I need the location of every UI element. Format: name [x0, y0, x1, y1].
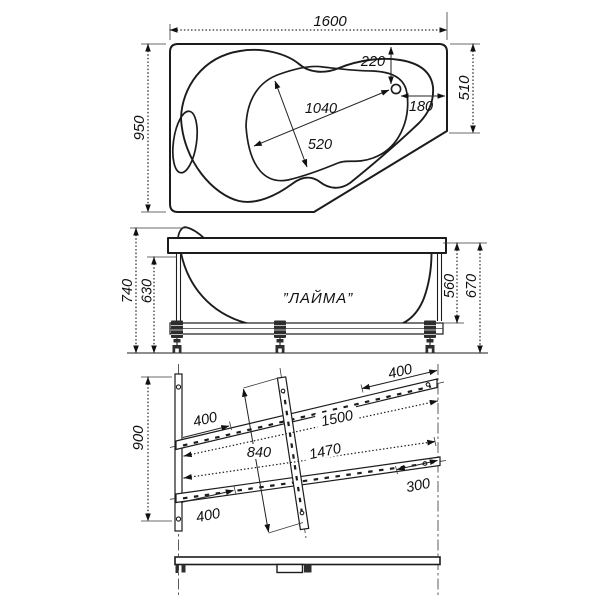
dim-basin-width-label: 520	[308, 137, 332, 153]
dim-height-underside-left: 630	[140, 257, 178, 353]
drawing-canvas: 1600 950 510 220 180 1040 520	[0, 0, 600, 600]
foot-right	[426, 338, 435, 354]
dim-height-underside-right-label: 560	[442, 274, 458, 298]
dim-upper-right-offset-label: 400	[387, 361, 414, 382]
foot-left	[173, 338, 182, 354]
dim-height-underside-left-label: 630	[140, 279, 156, 303]
drain-hole	[391, 84, 400, 93]
rim-edge	[168, 238, 446, 253]
left-vertical-rail	[175, 374, 182, 531]
dim-right-edge-label: 510	[456, 75, 473, 101]
dim-lower-right-offset-label: 300	[405, 476, 432, 496]
dim-lower-left-offset-label: 400	[195, 506, 222, 526]
clamp-center	[274, 321, 286, 339]
rail-hole	[176, 385, 180, 389]
dim-right-edge: 510	[449, 44, 480, 133]
side-view: 740 630 560 670 ”ЛАЙМА”	[120, 227, 488, 353]
headrest-profile	[178, 227, 204, 238]
dim-frame-width-label: 900	[130, 425, 147, 451]
dim-drain-right-label: 180	[409, 99, 433, 115]
technical-drawing-bathtub: 1600 950 510 220 180 1040 520	[0, 0, 600, 600]
model-name-label: ”ЛАЙМА”	[283, 289, 354, 307]
dim-height-rim-left-label: 740	[120, 279, 136, 303]
panel-center-bracket	[277, 565, 312, 573]
dim-overall-length: 1600	[170, 12, 447, 40]
rail-hole	[176, 517, 180, 521]
dim-height-rim-right: 670	[464, 243, 480, 353]
dim-drain-top-label: 220	[360, 54, 385, 70]
dim-cross-member-label: 840	[247, 445, 271, 461]
panel-left-bracket	[176, 565, 186, 574]
frame-posts	[177, 253, 442, 321]
dim-lower-rail-label: 1470	[308, 441, 343, 463]
dim-basin-length-label: 1040	[305, 101, 337, 117]
dim-upper-left-offset-label: 400	[192, 409, 219, 430]
dim-overall-width: 950	[131, 44, 166, 212]
dim-overall-length-label: 1600	[313, 13, 347, 30]
panel-edge-view	[175, 557, 440, 573]
foot-center	[276, 338, 285, 354]
dim-frame-width: 900	[130, 377, 172, 521]
panel-bar	[175, 557, 440, 565]
adjustable-feet	[173, 338, 435, 354]
clamp-left	[171, 321, 183, 339]
dim-overall-width-label: 950	[131, 115, 148, 141]
dim-height-rim-right-label: 670	[464, 274, 480, 298]
plan-view: 1600 950 510 220 180 1040 520	[131, 12, 480, 212]
clamp-right	[424, 321, 436, 339]
